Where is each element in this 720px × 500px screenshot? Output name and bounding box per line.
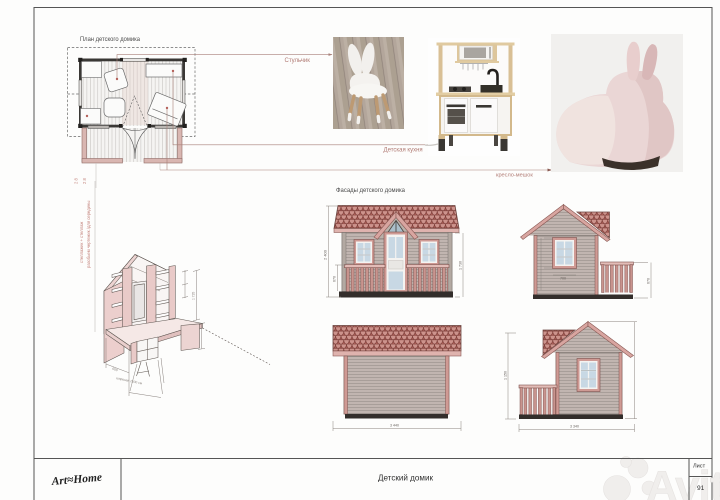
svg-text:Фасады детского домика: Фасады детского домика bbox=[336, 188, 406, 194]
svg-text:700: 700 bbox=[560, 277, 566, 281]
svg-text:1 150: 1 150 bbox=[504, 371, 508, 380]
svg-text:1 730: 1 730 bbox=[459, 261, 463, 270]
svg-text:Детский домик: Детский домик bbox=[378, 474, 433, 483]
svg-text:91: 91 bbox=[697, 485, 705, 492]
svg-text:Avito: Avito bbox=[646, 462, 720, 500]
svg-text:670: 670 bbox=[333, 276, 337, 282]
svg-text:Лист: Лист bbox=[693, 464, 706, 470]
svg-text:2 400: 2 400 bbox=[323, 249, 328, 260]
svg-text:670: 670 bbox=[647, 278, 651, 284]
svg-text:3 440: 3 440 bbox=[390, 424, 399, 428]
svg-text:разобьем чертежик /для середин: разобьем чертежик /для середины bbox=[86, 201, 91, 268]
svg-text:2 8: 2 8 bbox=[82, 178, 87, 184]
svg-text:стеллажик + стеллаж: стеллажик + стеллаж bbox=[79, 222, 84, 263]
svg-text:Детская кухня: Детская кухня bbox=[384, 148, 423, 154]
svg-text:3 340: 3 340 bbox=[570, 425, 579, 429]
svg-text:Стульчик: Стульчик bbox=[285, 58, 311, 64]
svg-text:1 720: 1 720 bbox=[192, 292, 196, 300]
svg-text:кресло-мешок: кресло-мешок bbox=[496, 173, 533, 179]
svg-text:План детского домика: План детского домика bbox=[80, 37, 141, 43]
svg-text:2 8: 2 8 bbox=[74, 178, 79, 184]
